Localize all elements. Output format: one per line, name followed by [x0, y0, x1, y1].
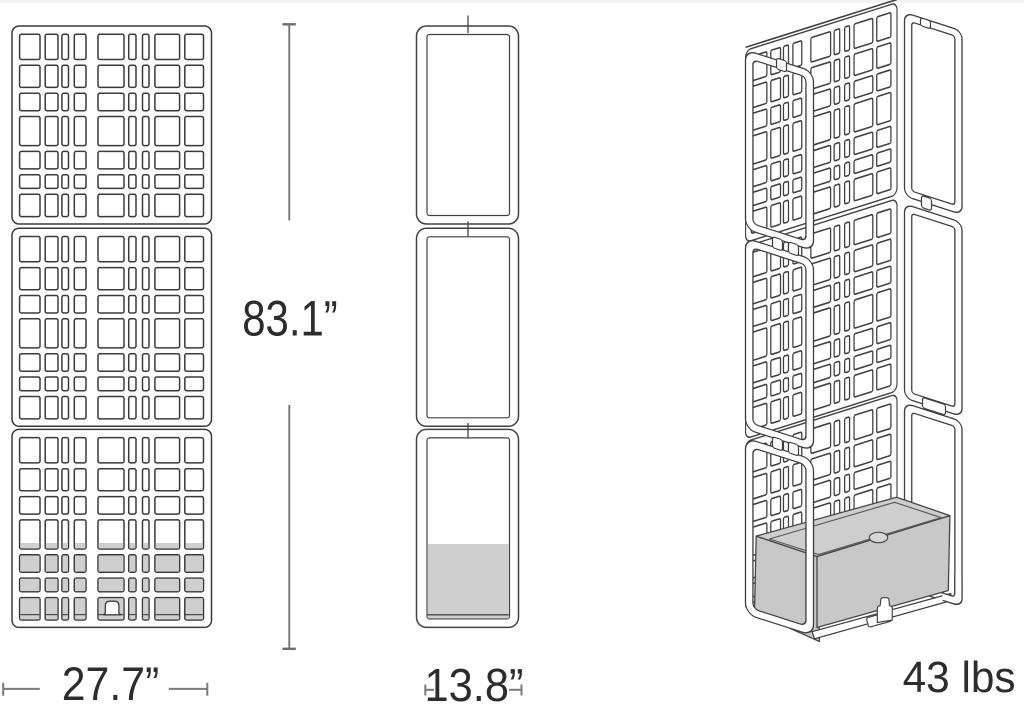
svg-text:13.8”: 13.8”	[425, 659, 524, 708]
svg-text:83.1”: 83.1”	[242, 290, 338, 346]
svg-text:27.7”: 27.7”	[62, 658, 160, 708]
svg-text:43 lbs: 43 lbs	[903, 653, 1016, 702]
